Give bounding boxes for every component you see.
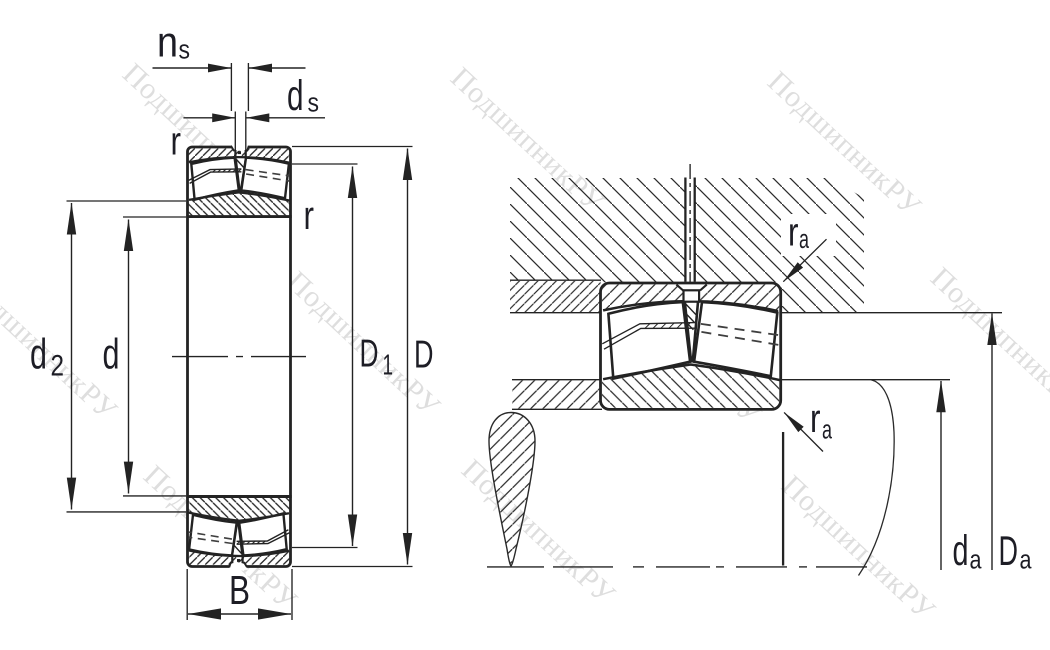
svg-text:1: 1 [383,350,394,382]
svg-text:s: s [179,35,191,65]
svg-text:2: 2 [51,350,65,383]
svg-text:d: d [287,72,304,120]
svg-text:a: a [1020,545,1033,575]
svg-text:D: D [999,527,1019,574]
svg-text:a: a [822,415,833,445]
svg-text:D: D [360,333,379,376]
svg-text:a: a [799,224,810,254]
svg-text:s: s [308,88,320,118]
svg-text:r: r [304,194,315,238]
svg-text:r: r [788,211,799,255]
svg-text:a: a [970,545,983,575]
svg-text:n: n [157,19,178,67]
svg-text:d: d [103,331,120,379]
svg-text:d: d [30,331,47,379]
svg-text:D: D [414,334,434,377]
svg-text:B: B [229,567,250,613]
svg-text:r: r [171,120,182,164]
svg-text:r: r [810,397,821,441]
svg-text:d: d [953,527,969,575]
